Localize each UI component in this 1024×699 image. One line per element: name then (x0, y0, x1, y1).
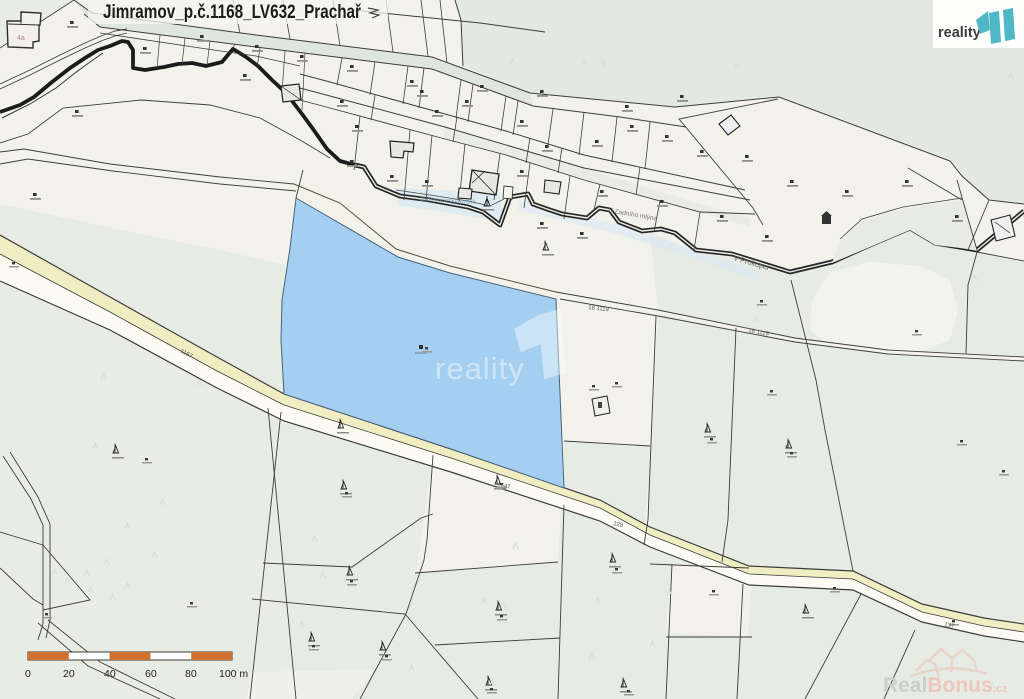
svg-text:Jimramov_p.č.1168_LV632_Pracha: Jimramov_p.č.1168_LV632_Prachař (103, 2, 361, 23)
svg-text:reality: reality (938, 25, 981, 41)
svg-text:reality: reality (435, 351, 525, 386)
svg-text:20: 20 (63, 668, 75, 680)
svg-text:4a: 4a (17, 35, 25, 42)
svg-text:60: 60 (145, 668, 157, 680)
svg-text:RealBonus.cz: RealBonus.cz (883, 674, 1008, 697)
svg-text:0: 0 (25, 668, 31, 680)
svg-text:80: 80 (185, 668, 197, 680)
svg-text:100 m: 100 m (219, 668, 248, 680)
svg-text:40: 40 (104, 668, 116, 680)
